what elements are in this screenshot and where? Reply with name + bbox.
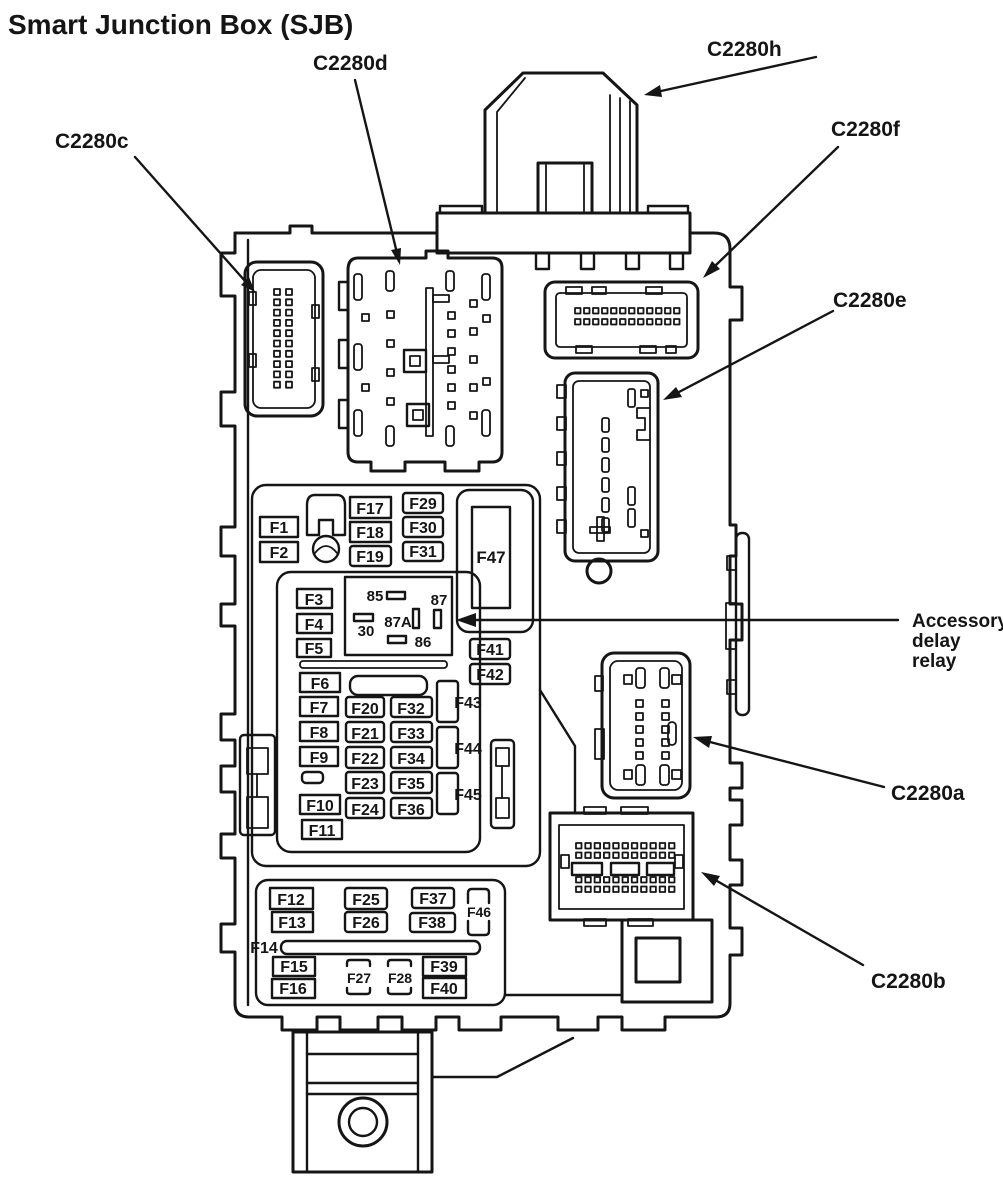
pin: [650, 853, 656, 859]
pin: [448, 366, 455, 373]
fuse-f19-label: F19: [356, 549, 384, 566]
pin: [593, 308, 599, 314]
pin: [660, 887, 666, 893]
fuse-f9-label: F9: [310, 750, 329, 767]
fuse-f26-label: F26: [352, 915, 380, 932]
pin: [656, 319, 662, 325]
pin: [623, 853, 629, 859]
bolt-hole-outer: [339, 1098, 387, 1146]
pin: [636, 739, 643, 746]
relay-pin-30: 30: [358, 623, 375, 640]
pin: [611, 319, 617, 325]
pin: [662, 752, 669, 759]
fuse-f27-label: F27: [347, 970, 371, 986]
pin: [286, 351, 292, 357]
pin: [613, 887, 619, 893]
pin: [613, 877, 619, 883]
pin: [448, 384, 455, 391]
c2280a-pins: [636, 700, 669, 759]
connector-c2280b: [550, 807, 712, 1002]
c2280e-locator-ring: [587, 559, 611, 583]
pin: [585, 887, 591, 893]
pin: [623, 843, 629, 849]
pin: [470, 356, 477, 363]
fuse-f16-label: F16: [279, 981, 307, 998]
c2280b-pins-bottom: [576, 877, 675, 892]
pin: [585, 877, 591, 883]
label-c2280a: C2280a: [891, 782, 965, 805]
pin: [575, 319, 581, 325]
fuse-f34-label: F34: [397, 751, 425, 768]
pin: [660, 843, 666, 849]
pin: [604, 877, 610, 883]
pin: [620, 319, 626, 325]
pin: [611, 308, 617, 314]
label-relay-line2: delay: [912, 631, 961, 652]
bolt-hole-inner: [349, 1108, 377, 1136]
fuse-f38-label: F38: [418, 915, 446, 932]
relay-pin-85: 85: [367, 588, 384, 605]
fuse-f2-label: F2: [270, 545, 289, 562]
label-c2280b: C2280b: [871, 970, 946, 993]
c2280d-pins-col2: [387, 311, 394, 405]
connector-c2280d: [339, 251, 502, 471]
fuse-f32-label: F32: [397, 701, 425, 718]
fuse-f8-label: F8: [310, 725, 329, 742]
pin: [470, 300, 477, 307]
leader-c2280b: [717, 881, 863, 965]
pin: [613, 843, 619, 849]
fuse-f33-label: F33: [397, 726, 425, 743]
pin: [623, 877, 629, 883]
pin: [636, 726, 643, 733]
pin: [613, 853, 619, 859]
leader-c2280e: [679, 311, 833, 392]
fuse-f7-label: F7: [310, 700, 329, 717]
fuse-f4-label: F4: [305, 617, 324, 634]
fuse-puller: [307, 495, 345, 535]
fuse-f36-label: F36: [397, 802, 425, 819]
connector-c2280f: [545, 282, 698, 358]
callouts: C2280c C2280d C2280h C2280f C2280e Acces…: [55, 38, 1003, 993]
pin: [632, 853, 638, 859]
pin: [595, 887, 601, 893]
c2280c-pins: [274, 289, 292, 388]
connector-c2280h-housing: [437, 73, 690, 269]
pin: [641, 877, 647, 883]
pin: [669, 887, 675, 893]
fuse-f44-label: F44: [454, 741, 482, 758]
pin: [274, 330, 280, 336]
label-c2280f: C2280f: [831, 118, 901, 141]
pin: [636, 752, 643, 759]
label-relay-line3: relay: [912, 651, 957, 672]
pin: [576, 877, 582, 883]
pin: [650, 887, 656, 893]
pin: [274, 310, 280, 316]
fuse-f1-label: F1: [270, 520, 289, 537]
pin: [595, 853, 601, 859]
accessory-delay-relay: 85 87 30 87A 86: [345, 577, 452, 655]
pin: [650, 877, 656, 883]
pin: [669, 843, 675, 849]
pin: [448, 312, 455, 319]
pin: [620, 308, 626, 314]
blank-slot-small: [302, 772, 323, 783]
pin: [585, 853, 591, 859]
pin: [632, 877, 638, 883]
pin: [629, 308, 635, 314]
fuse-f21-label: F21: [351, 726, 379, 743]
pin: [647, 319, 653, 325]
blank-slot-wide: [350, 676, 427, 695]
pin: [638, 308, 644, 314]
pin: [665, 319, 671, 325]
pin: [602, 308, 608, 314]
leader-c2280d: [355, 80, 396, 249]
fuse-f11-label: F11: [309, 823, 336, 840]
pin: [470, 328, 477, 335]
pin: [662, 700, 669, 707]
c2280d-pins-col5: [470, 300, 477, 419]
pin: [636, 713, 643, 720]
label-c2280d: C2280d: [313, 52, 388, 75]
pin: [387, 398, 394, 405]
grommet: [313, 536, 339, 562]
fuse-f40-label: F40: [430, 981, 458, 998]
connector-c2280a: [595, 653, 690, 798]
fuse-f22-label: F22: [351, 751, 379, 768]
arrow-c2280b: [701, 872, 720, 886]
pin: [669, 853, 675, 859]
pin: [576, 843, 582, 849]
pin: [632, 843, 638, 849]
fuse-f20-label: F20: [351, 701, 379, 718]
pin: [641, 843, 647, 849]
pin: [595, 877, 601, 883]
relay-pin-87a: 87A: [384, 614, 412, 631]
pin: [448, 402, 455, 409]
pin: [575, 308, 581, 314]
fuse-f37-label: F37: [419, 891, 447, 908]
leader-c2280f: [716, 147, 838, 265]
label-c2280h: C2280h: [707, 38, 782, 61]
fuse-f28-label: F28: [388, 970, 412, 986]
pin: [274, 341, 280, 347]
pin: [669, 877, 675, 883]
fuse-f29-label: F29: [409, 496, 437, 513]
pin: [650, 843, 656, 849]
fuse-f24-label: F24: [351, 802, 379, 819]
pin: [604, 887, 610, 893]
pin: [665, 308, 671, 314]
pin: [286, 361, 292, 367]
pin: [641, 887, 647, 893]
pin: [641, 853, 647, 859]
pin: [274, 361, 280, 367]
fuse-f13-label: F13: [278, 915, 306, 932]
c2280b-pins-top: [576, 843, 675, 858]
pin: [274, 351, 280, 357]
fuse-f18-label: F18: [356, 525, 384, 542]
fuse-panel-lower: F12 F25 F37 F46 F13 F26 F38 F14 F15 F16 …: [250, 880, 505, 1005]
fuse-f25-label: F25: [352, 892, 380, 909]
mount-square-inner: [636, 938, 680, 982]
pin: [629, 319, 635, 325]
pin: [286, 382, 292, 388]
pin: [585, 843, 591, 849]
pin: [286, 310, 292, 316]
pin: [660, 877, 666, 883]
pin: [274, 289, 280, 295]
label-relay-line1: Accessory: [912, 611, 1003, 632]
fuse-f6-label: F6: [311, 676, 330, 693]
pin: [274, 299, 280, 305]
bracket-gusset: [432, 1038, 573, 1077]
fuse-f12-label: F12: [277, 892, 305, 909]
fuse-f3-label: F3: [305, 592, 324, 609]
pin: [387, 369, 394, 376]
fuse-f14-label: F14: [250, 940, 278, 957]
pin: [660, 853, 666, 859]
label-c2280c: C2280c: [55, 130, 129, 153]
pin: [576, 853, 582, 859]
bottom-mounting-bracket: [293, 1032, 573, 1172]
pin: [593, 319, 599, 325]
fuse-f10-label: F10: [306, 798, 334, 815]
fuse-f30-label: F30: [409, 520, 437, 537]
fuse-f43-label: F43: [454, 695, 482, 712]
pin: [636, 700, 643, 707]
pin: [662, 713, 669, 720]
pin: [602, 319, 608, 325]
fuse-f14-bar: [281, 941, 480, 954]
fuse-f45-label: F45: [454, 787, 482, 804]
fuse-f46-label: F46: [467, 904, 491, 920]
arrow-c2280h: [644, 85, 662, 97]
fuse-f17-label: F17: [356, 501, 384, 518]
pin: [604, 853, 610, 859]
pin: [470, 412, 477, 419]
pin: [638, 319, 644, 325]
fuse-f47-label: F47: [476, 548, 505, 567]
leader-c2280h: [661, 57, 816, 91]
fuse-f31-label: F31: [409, 544, 437, 561]
pin: [595, 843, 601, 849]
pin: [632, 887, 638, 893]
pin: [656, 308, 662, 314]
page-title: Smart Junction Box (SJB): [8, 9, 353, 40]
pin: [584, 319, 590, 325]
pin: [584, 308, 590, 314]
label-c2280e: C2280e: [833, 289, 907, 312]
pin: [274, 371, 280, 377]
sjb-diagram: Smart Junction Box (SJB): [0, 0, 1003, 1183]
connector-c2280c: [245, 262, 323, 416]
c2280f-pins: [575, 308, 680, 325]
pin: [286, 320, 292, 326]
pin: [674, 308, 680, 314]
relay-pin-87: 87: [431, 592, 448, 609]
pin: [604, 843, 610, 849]
pin: [286, 330, 292, 336]
fuse-f23-label: F23: [351, 776, 379, 793]
fuse-f5-label: F5: [305, 641, 324, 658]
pin: [674, 319, 680, 325]
fuse-f39-label: F39: [430, 959, 458, 976]
fuse-f35-label: F35: [397, 776, 425, 793]
tower-base-bar: [437, 213, 690, 253]
leader-c2280c: [135, 157, 245, 281]
pin: [576, 887, 582, 893]
connector-c2280e: [557, 373, 658, 583]
pin: [286, 299, 292, 305]
arrow-c2280a: [693, 736, 712, 748]
pin: [387, 340, 394, 347]
pin: [286, 371, 292, 377]
pin: [470, 384, 477, 391]
pin: [623, 887, 629, 893]
pin: [274, 320, 280, 326]
pin: [286, 341, 292, 347]
pin: [448, 348, 455, 355]
pin: [387, 311, 394, 318]
arrow-c2280e: [663, 387, 682, 400]
pin: [286, 289, 292, 295]
relay-pin-86: 86: [415, 634, 432, 651]
pin: [448, 330, 455, 337]
fuse-f15-label: F15: [280, 959, 308, 976]
pin: [647, 308, 653, 314]
pin: [274, 382, 280, 388]
